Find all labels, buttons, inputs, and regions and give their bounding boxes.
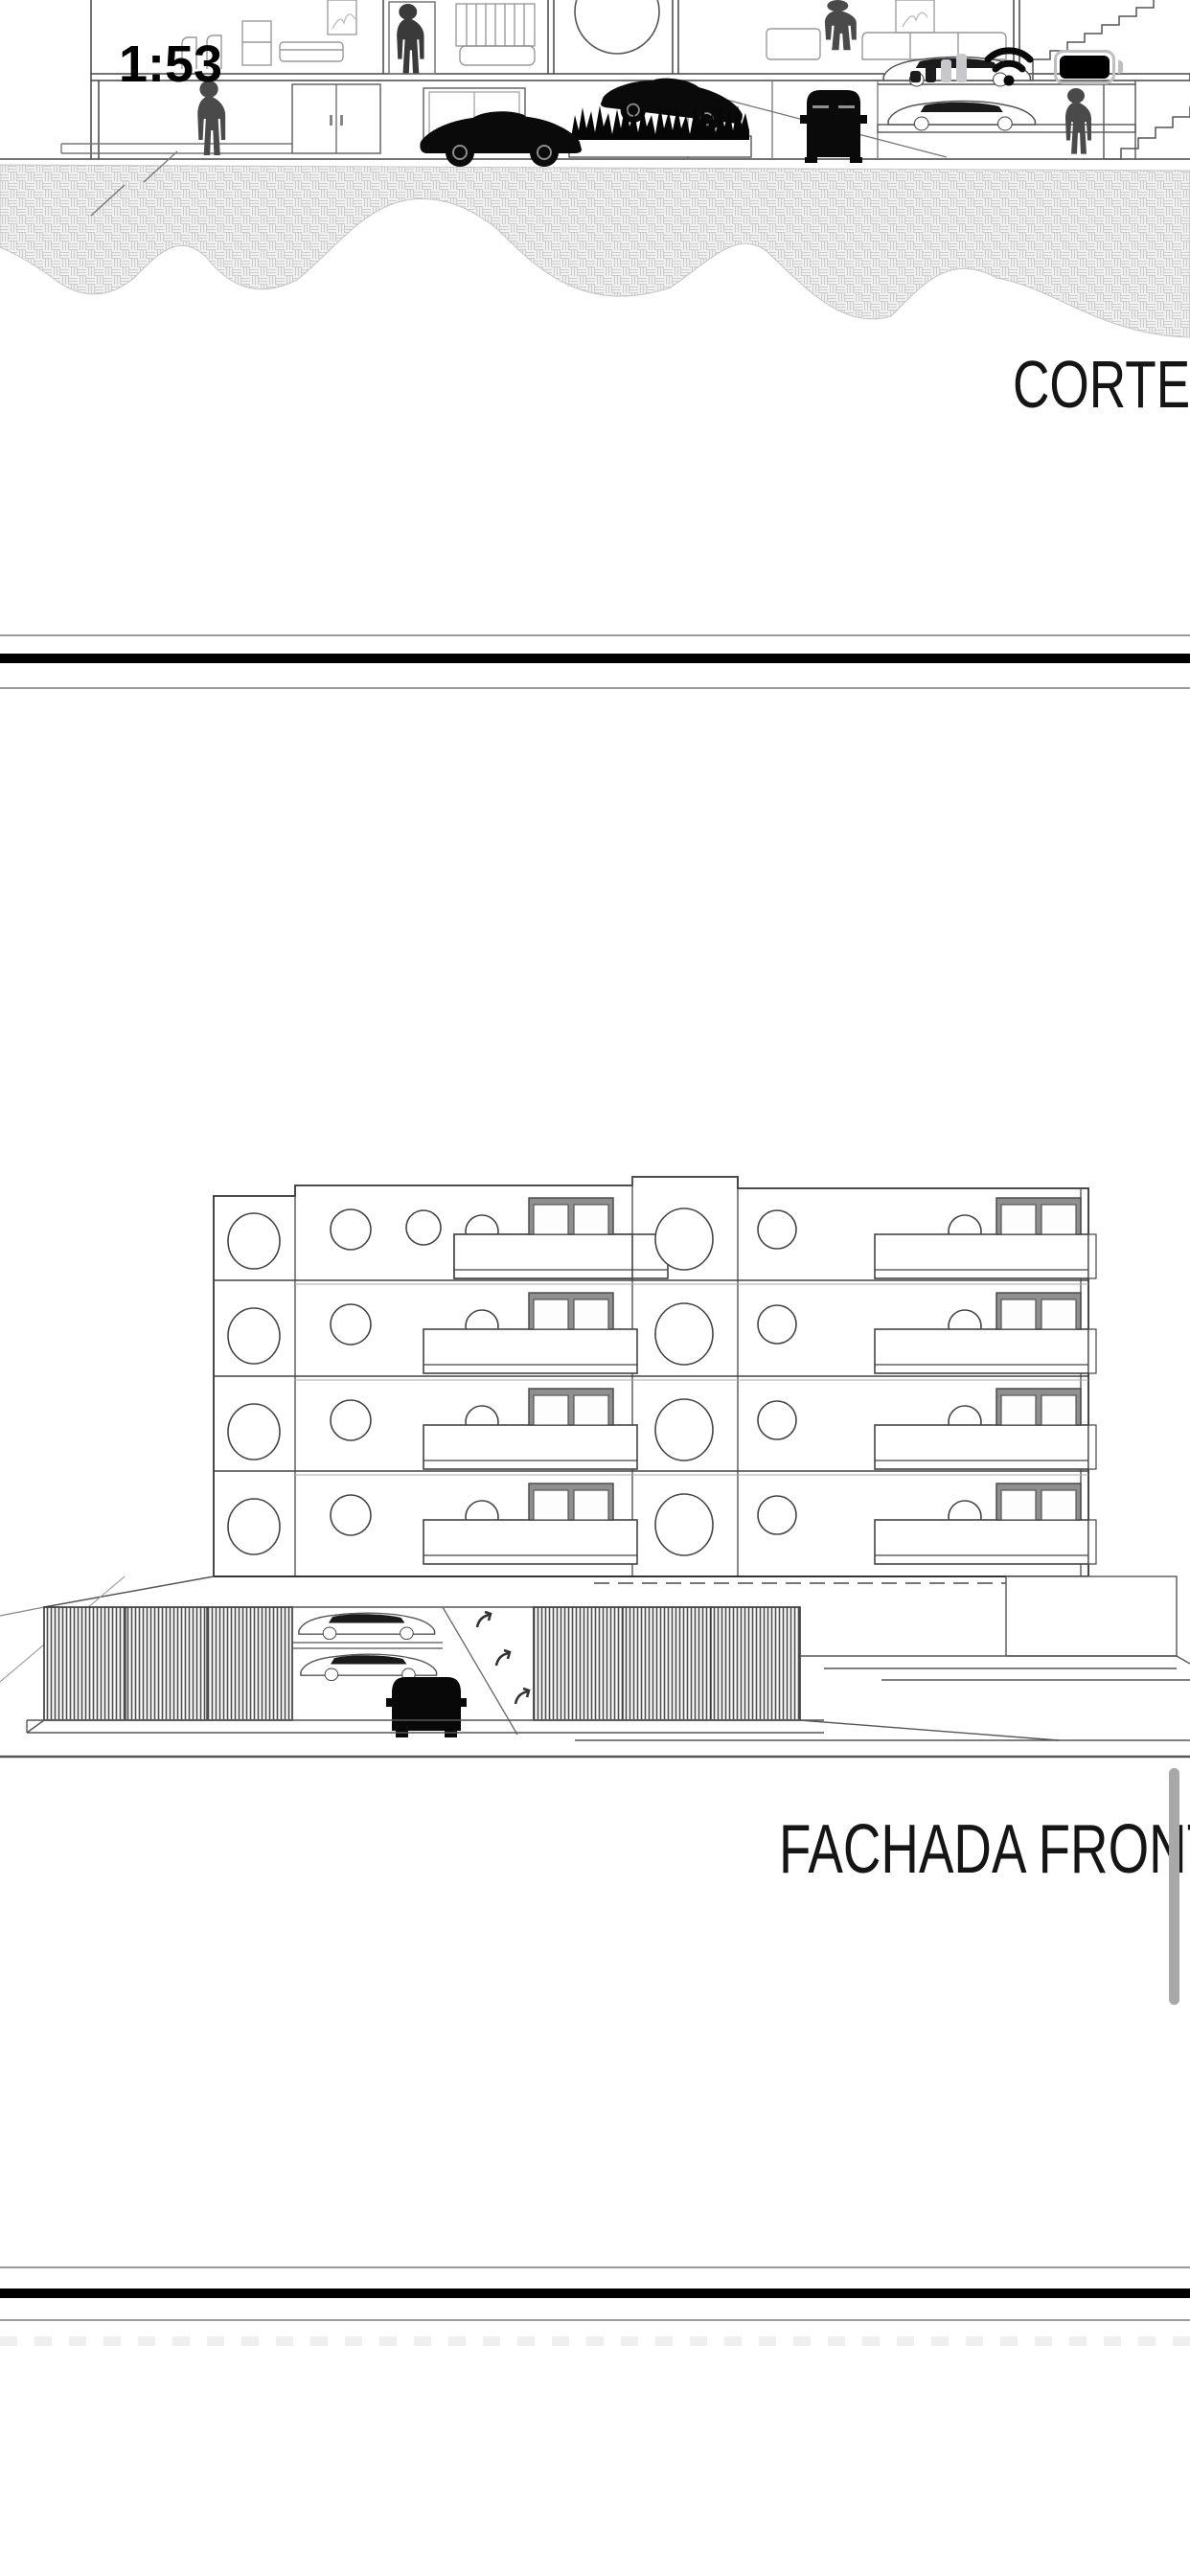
facade-drawing	[0, 1160, 1190, 1773]
car-entering-garage	[386, 1677, 467, 1737]
page2-bottom-edge	[0, 2266, 1190, 2268]
wardrobe	[456, 4, 535, 46]
status-time: 1:53	[119, 38, 222, 90]
page1-bottom-edge	[0, 634, 1190, 636]
document-page-3[interactable]	[0, 2321, 1190, 2576]
battery-icon	[1054, 50, 1125, 80]
podium	[0, 1576, 824, 1737]
facade-label: FACHADA FRONT	[779, 1815, 1190, 1884]
page3-faint-hatch-row	[0, 2336, 1190, 2346]
entry-door	[292, 84, 380, 153]
garage-opening	[292, 1607, 534, 1737]
suv-rear	[800, 90, 867, 163]
ramp-arrows	[477, 1612, 529, 1704]
scrollbar-thumb[interactable]	[1169, 1768, 1179, 2005]
person-silhouette-living-room	[825, 0, 857, 50]
ground-hatch	[0, 165, 1190, 337]
pdf-viewer-screen: CORTE 1:53	[0, 0, 1190, 2576]
louver-wall-right	[534, 1607, 800, 1720]
page-divider-bar-1	[0, 654, 1190, 663]
page-divider-bar-2	[0, 2288, 1190, 2298]
upper-floor-furniture	[182, 21, 1006, 69]
circular-window	[575, 0, 659, 54]
person-silhouette-doorway	[397, 4, 423, 74]
document-page-1[interactable]: CORTE	[0, 0, 1190, 634]
louver-wall-left	[44, 1607, 292, 1720]
section-label: CORTE	[1013, 351, 1190, 418]
document-page-2[interactable]: FACHADA FRONT	[0, 689, 1190, 2266]
cellular-signal-icon	[910, 54, 972, 82]
wifi-icon	[983, 46, 1035, 86]
person-silhouette-stairs	[1065, 88, 1091, 154]
